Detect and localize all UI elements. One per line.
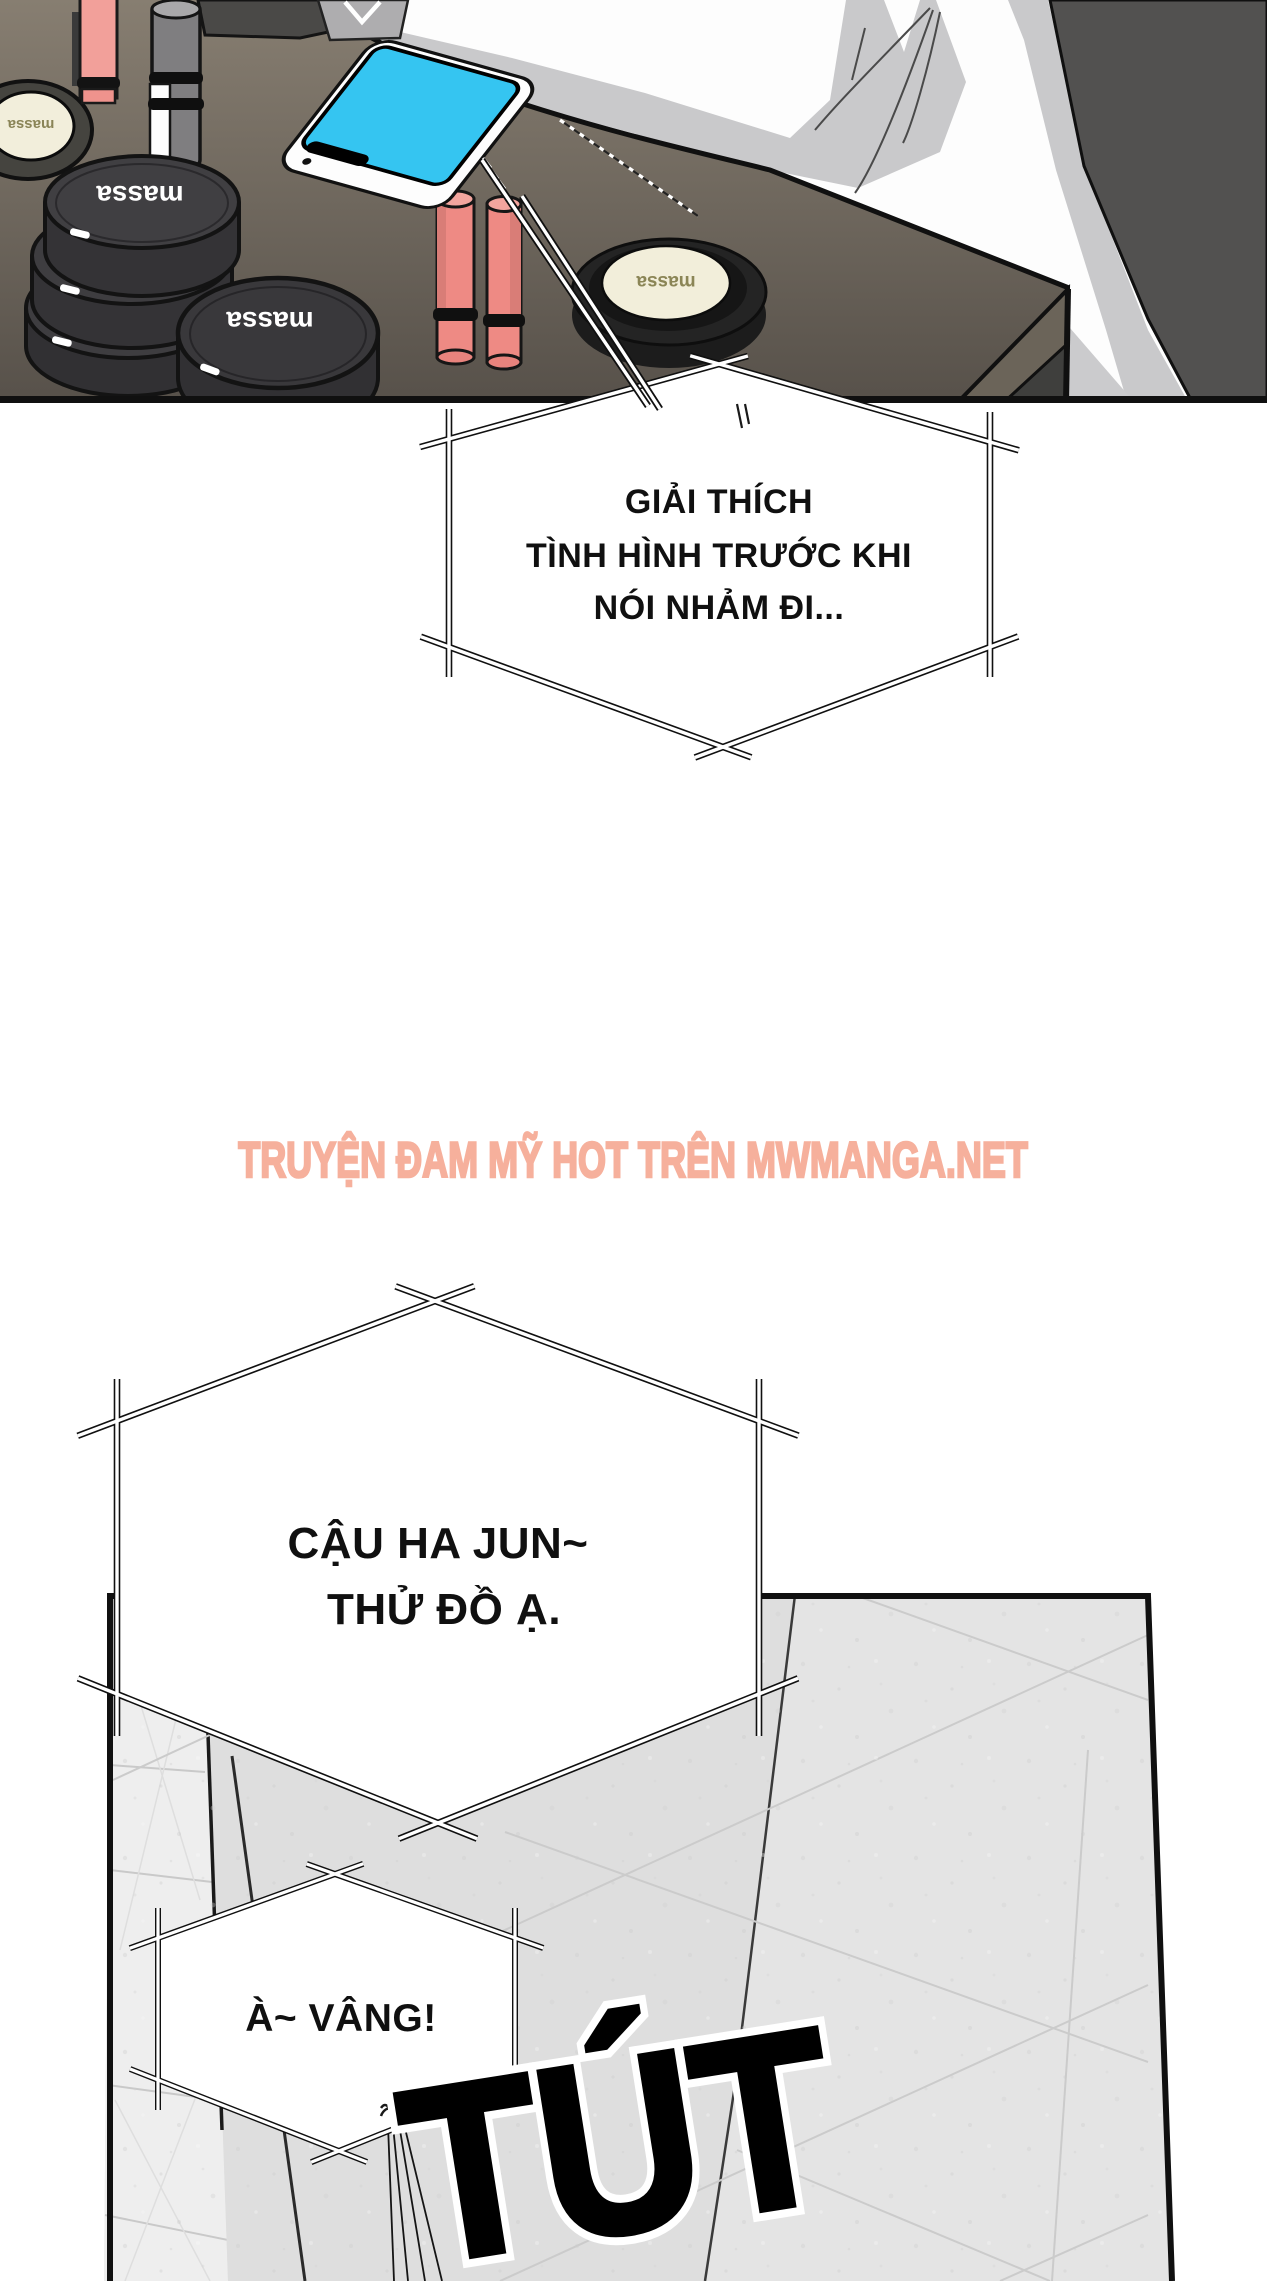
svg-text:À~ VÂNG!: À~ VÂNG! [245, 1996, 436, 2040]
svg-text:massa: massa [96, 180, 184, 211]
svg-text:NÓI NHẢM ĐI...: NÓI NHẢM ĐI... [594, 589, 845, 627]
svg-text:massa: massa [7, 116, 54, 133]
svg-text:CẬU HA JUN~: CẬU HA JUN~ [288, 1518, 589, 1568]
svg-text:THỬ ĐỒ Ạ.: THỬ ĐỒ Ạ. [327, 1583, 561, 1634]
svg-text:TÌNH HÌNH TRƯỚC KHI: TÌNH HÌNH TRƯỚC KHI [526, 537, 912, 575]
svg-text:massa: massa [226, 306, 314, 337]
svg-text:massa: massa [636, 271, 696, 292]
svg-text:GIẢI THÍCH: GIẢI THÍCH [625, 483, 813, 521]
svg-text:TRUYỆN ĐAM MỸ HOT TRÊN MWMANGA: TRUYỆN ĐAM MỸ HOT TRÊN MWMANGA.NET [238, 1131, 1028, 1188]
